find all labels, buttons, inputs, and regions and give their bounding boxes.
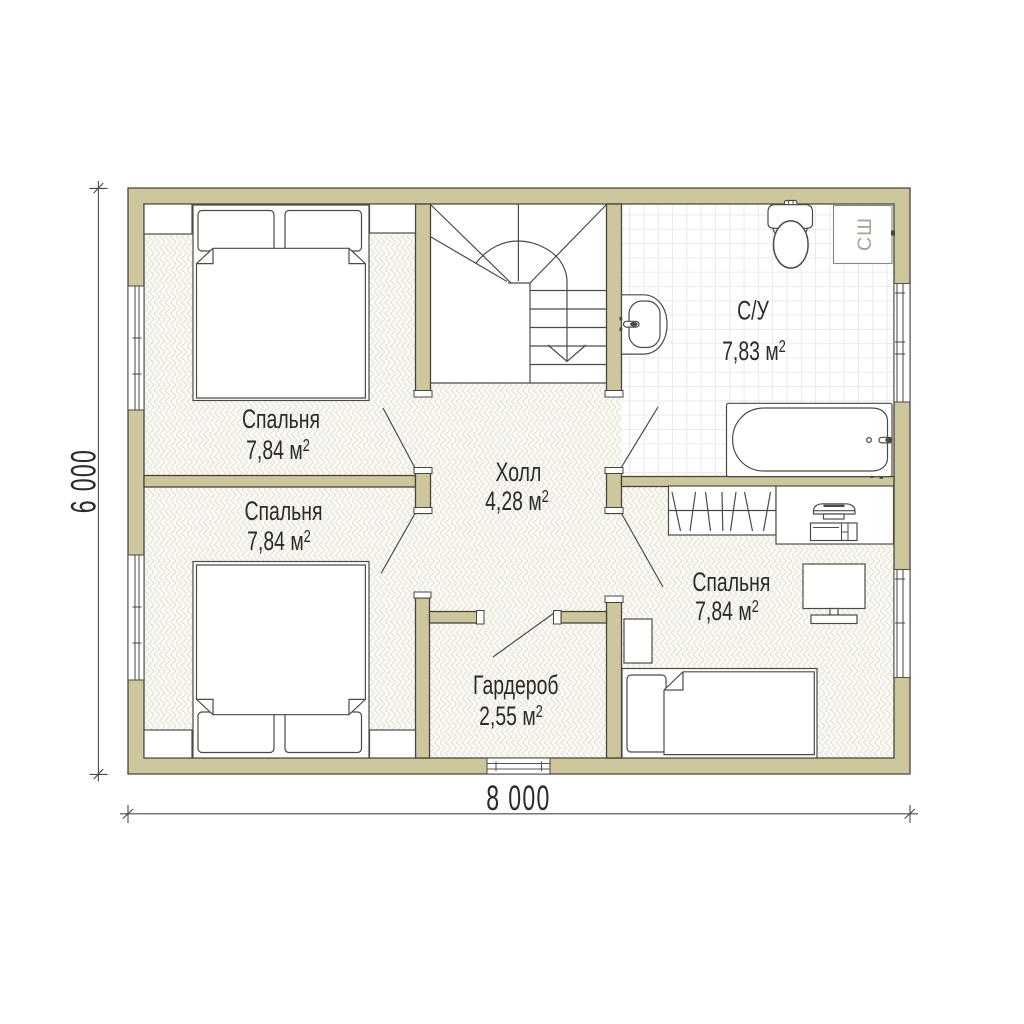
svg-text:Гардероб: Гардероб [473, 670, 558, 700]
svg-text:7,83 м2: 7,83 м2 [722, 336, 786, 366]
svg-text:8 000: 8 000 [486, 779, 550, 818]
svg-text:7,84 м2: 7,84 м2 [247, 526, 311, 556]
svg-text:Спальня: Спальня [692, 567, 770, 597]
svg-text:7,84 м2: 7,84 м2 [246, 435, 310, 465]
svg-text:Спальня: Спальня [242, 404, 320, 434]
svg-text:СШ: СШ [854, 217, 876, 251]
svg-text:С/У: С/У [737, 295, 770, 325]
svg-text:Холл: Холл [495, 457, 541, 487]
svg-text:4,28 м2: 4,28 м2 [485, 486, 549, 516]
svg-text:6 000: 6 000 [65, 449, 104, 513]
svg-text:7,84 м2: 7,84 м2 [695, 596, 759, 626]
svg-text:Спальня: Спальня [244, 496, 322, 526]
svg-text:2,55 м2: 2,55 м2 [479, 701, 543, 731]
